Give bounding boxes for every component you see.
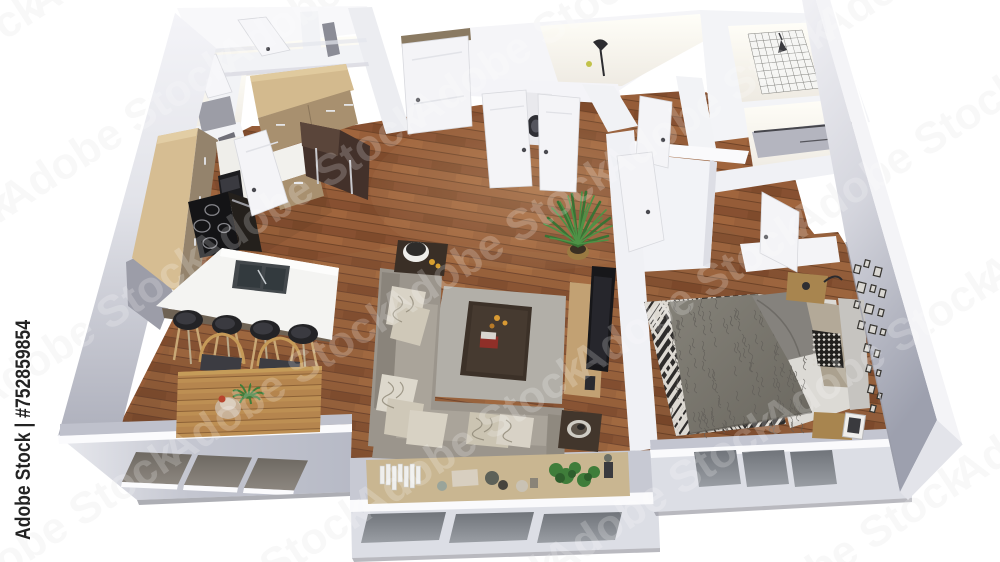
svg-text:Adobe Stock | #752859854: Adobe Stock | #752859854	[12, 320, 35, 540]
